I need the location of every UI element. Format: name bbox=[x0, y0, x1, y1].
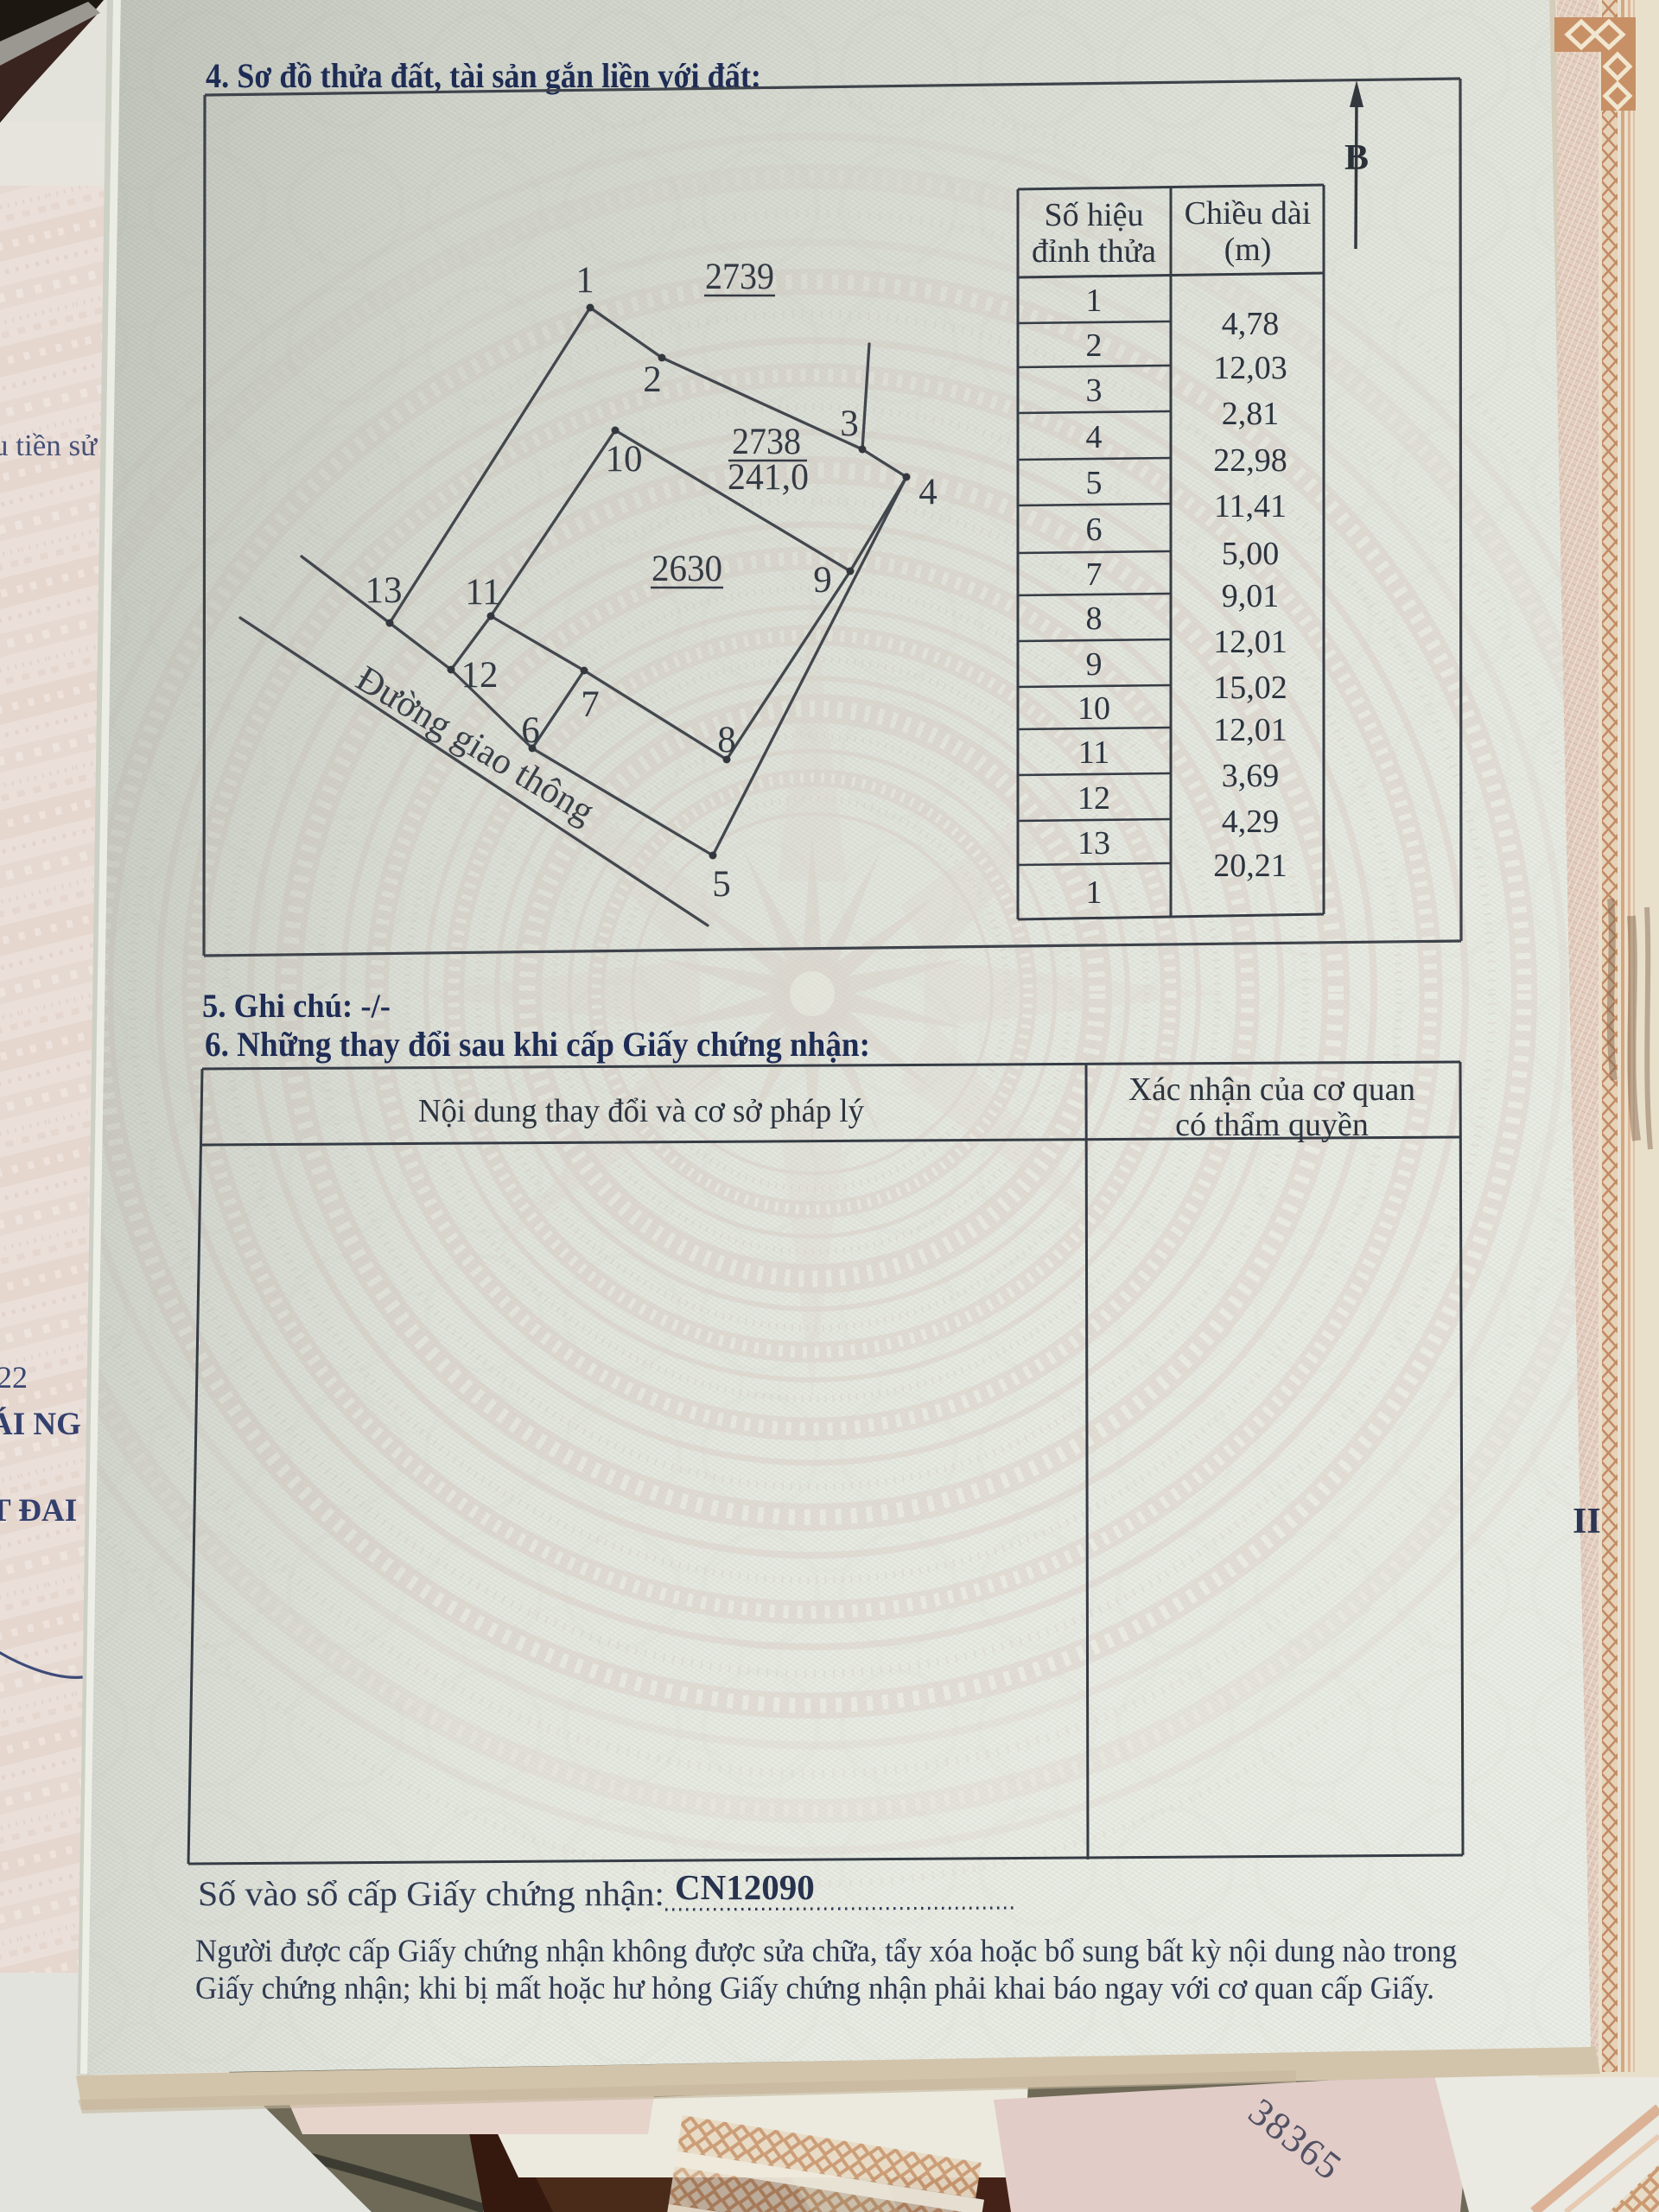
svg-text:12: 12 bbox=[461, 655, 499, 696]
svg-text:u tiền sử: u tiền sử bbox=[0, 429, 98, 462]
svg-text:12: 12 bbox=[1077, 780, 1110, 817]
svg-text:9: 9 bbox=[1086, 646, 1103, 683]
svg-text:22,98: 22,98 bbox=[1213, 442, 1287, 479]
svg-text:1: 1 bbox=[575, 260, 594, 301]
svg-text:Xác nhận của cơ quan: Xác nhận của cơ quan bbox=[1128, 1071, 1415, 1108]
svg-text:đỉnh thửa: đỉnh thửa bbox=[1032, 233, 1156, 270]
svg-text:13: 13 bbox=[1077, 825, 1110, 861]
svg-text:Số vào sổ cấp Giấy chứng nhận:: Số vào sổ cấp Giấy chứng nhận: bbox=[198, 1874, 664, 1913]
svg-text:10: 10 bbox=[606, 439, 643, 480]
svg-text:12,01: 12,01 bbox=[1213, 712, 1287, 748]
svg-text:1: 1 bbox=[1086, 283, 1103, 319]
svg-text:Giấy chứng nhận; khi bị mất ho: Giấy chứng nhận; khi bị mất hoặc hư hỏng… bbox=[195, 1971, 1434, 2006]
svg-text:20,21: 20,21 bbox=[1213, 848, 1287, 884]
svg-text:7: 7 bbox=[581, 684, 600, 725]
svg-text:4,78: 4,78 bbox=[1222, 306, 1280, 342]
svg-text:3,69: 3,69 bbox=[1222, 758, 1280, 794]
svg-text:có thẩm quyền: có thẩm quyền bbox=[1175, 1107, 1369, 1143]
svg-text:2,81: 2,81 bbox=[1222, 396, 1280, 432]
svg-text:22: 22 bbox=[0, 1360, 28, 1395]
svg-text:8: 8 bbox=[717, 720, 736, 760]
svg-text:2739: 2739 bbox=[705, 257, 774, 297]
svg-text:2630: 2630 bbox=[652, 549, 722, 589]
svg-text:Nội dung thay đổi và cơ sở phá: Nội dung thay đổi và cơ sở pháp lý bbox=[418, 1093, 864, 1129]
svg-text:5,00: 5,00 bbox=[1222, 536, 1280, 572]
svg-text:II: II bbox=[1573, 1502, 1601, 1541]
svg-text:4: 4 bbox=[918, 472, 938, 512]
svg-text:4: 4 bbox=[1086, 419, 1103, 455]
svg-text:T ĐAI: T ĐAI bbox=[0, 1493, 77, 1529]
svg-text:9,01: 9,01 bbox=[1222, 578, 1280, 614]
svg-text:6: 6 bbox=[521, 710, 540, 751]
svg-text:11: 11 bbox=[465, 572, 500, 613]
svg-text:1: 1 bbox=[1086, 874, 1103, 911]
svg-text:2: 2 bbox=[1086, 327, 1103, 364]
svg-text:5: 5 bbox=[1086, 465, 1103, 501]
svg-text:10: 10 bbox=[1077, 690, 1110, 727]
svg-text:5. Ghi chú: -/-: 5. Ghi chú: -/- bbox=[202, 988, 391, 1025]
svg-text:6: 6 bbox=[1086, 512, 1103, 548]
svg-text:4,29: 4,29 bbox=[1222, 804, 1280, 840]
svg-text:Số hiệu: Số hiệu bbox=[1044, 197, 1143, 233]
svg-text:12,01: 12,01 bbox=[1213, 624, 1287, 660]
svg-text:13: 13 bbox=[365, 570, 403, 611]
svg-text:7: 7 bbox=[1086, 556, 1103, 593]
svg-text:241,0: 241,0 bbox=[728, 457, 809, 498]
svg-text:Chiều dài: Chiều dài bbox=[1185, 195, 1312, 232]
svg-text:15,02: 15,02 bbox=[1213, 670, 1287, 706]
svg-text:9: 9 bbox=[813, 560, 832, 601]
svg-text:11: 11 bbox=[1078, 734, 1110, 771]
svg-text:8: 8 bbox=[1086, 601, 1103, 637]
svg-text:B: B bbox=[1344, 138, 1369, 178]
svg-text:2: 2 bbox=[643, 359, 662, 400]
svg-text:ÁI NG: ÁI NG bbox=[0, 1406, 81, 1442]
svg-text:Người được cấp Giấy chứng nhận: Người được cấp Giấy chứng nhận không đượ… bbox=[195, 1934, 1457, 1969]
svg-text:6. Những thay đổi sau khi cấp: 6. Những thay đổi sau khi cấp Giấy chứng… bbox=[205, 1025, 870, 1064]
svg-text:CN12090: CN12090 bbox=[675, 1867, 815, 1907]
svg-text:2738: 2738 bbox=[732, 422, 801, 462]
svg-text:5: 5 bbox=[712, 864, 731, 905]
svg-text:11,41: 11,41 bbox=[1214, 488, 1287, 524]
svg-text:(m): (m) bbox=[1224, 232, 1272, 268]
svg-text:12,03: 12,03 bbox=[1213, 350, 1287, 386]
svg-text:3: 3 bbox=[1086, 372, 1103, 409]
svg-text:3: 3 bbox=[840, 404, 859, 444]
